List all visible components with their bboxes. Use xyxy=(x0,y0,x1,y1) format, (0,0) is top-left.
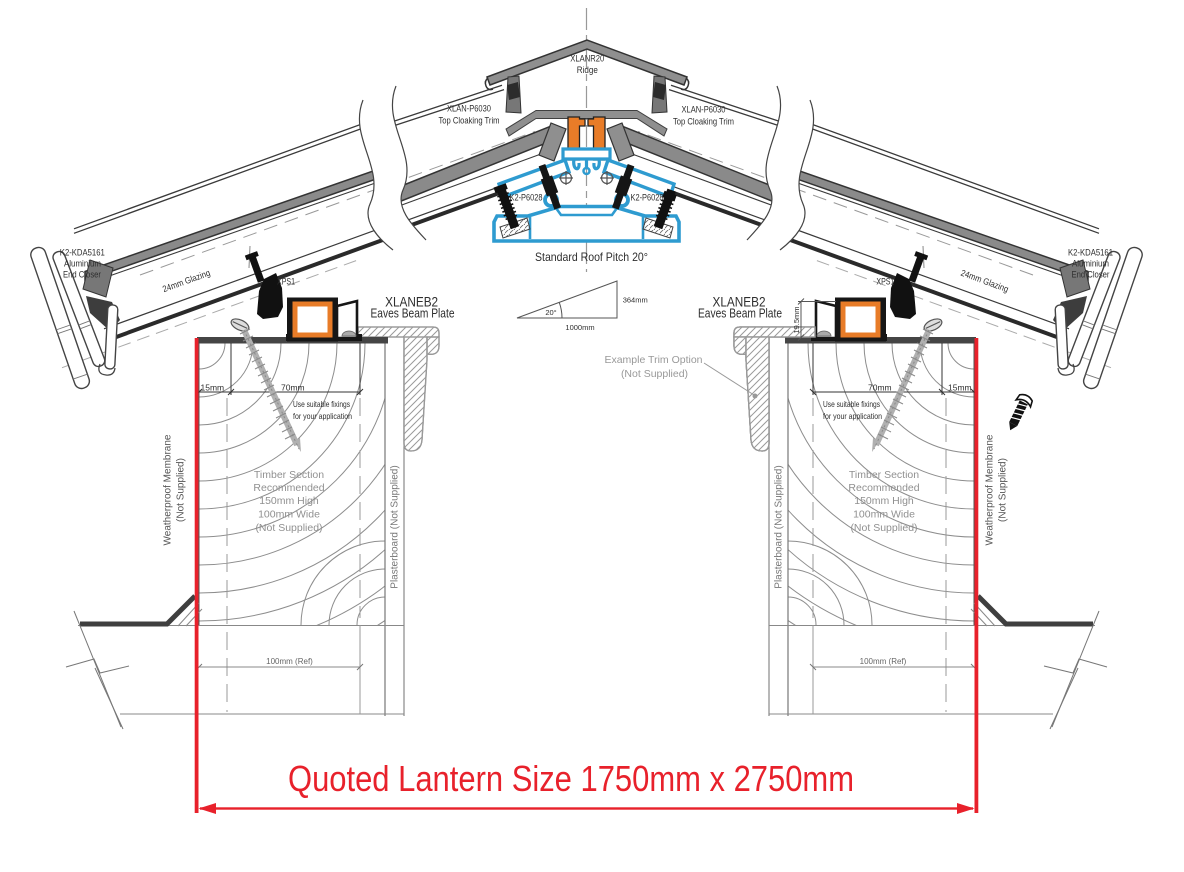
svg-text:150mm High: 150mm High xyxy=(259,495,319,507)
svg-text:(Not Supplied): (Not Supplied) xyxy=(998,458,1009,522)
svg-text:Ridge: Ridge xyxy=(577,65,598,75)
svg-text:Use suitable fixings: Use suitable fixings xyxy=(823,399,880,409)
svg-text:15mm: 15mm xyxy=(948,383,972,393)
svg-text:20°: 20° xyxy=(545,308,556,317)
svg-text:Use suitable fixings: Use suitable fixings xyxy=(293,399,350,409)
svg-text:Aluminium: Aluminium xyxy=(64,259,101,269)
svg-text:100mm Wide: 100mm Wide xyxy=(258,509,320,521)
svg-text:K2-P6028: K2-P6028 xyxy=(631,193,664,203)
svg-text:K2-KDA5161: K2-KDA5161 xyxy=(1068,247,1113,257)
svg-text:Standard Roof Pitch 20°: Standard Roof Pitch 20° xyxy=(535,250,648,264)
svg-text:150mm High: 150mm High xyxy=(854,495,914,507)
svg-text:XPS1: XPS1 xyxy=(277,277,295,287)
svg-text:Plasterboard (Not Supplied): Plasterboard (Not Supplied) xyxy=(774,465,785,588)
svg-text:100mm (Ref): 100mm (Ref) xyxy=(860,657,907,666)
svg-text:K2-P6028: K2-P6028 xyxy=(510,193,543,203)
svg-text:K2-KDA5161: K2-KDA5161 xyxy=(60,247,105,257)
svg-text:XPS1: XPS1 xyxy=(876,277,894,287)
svg-text:Eaves Beam Plate: Eaves Beam Plate xyxy=(371,306,455,321)
svg-text:19.5mm: 19.5mm xyxy=(792,306,801,333)
svg-text:100mm (Ref): 100mm (Ref) xyxy=(266,657,313,666)
svg-text:Top Cloaking Trim: Top Cloaking Trim xyxy=(439,116,500,126)
svg-text:XLAN-P6030: XLAN-P6030 xyxy=(682,105,726,115)
svg-text:XLAN-P6030: XLAN-P6030 xyxy=(447,104,491,114)
svg-text:70mm: 70mm xyxy=(868,383,892,393)
svg-text:Timber Section: Timber Section xyxy=(849,469,919,481)
svg-text:(Not Supplied): (Not Supplied) xyxy=(621,368,688,380)
svg-text:100mm Wide: 100mm Wide xyxy=(853,509,915,521)
svg-text:for your application: for your application xyxy=(293,411,352,421)
svg-text:Timber Section: Timber Section xyxy=(254,469,324,481)
svg-text:for your application: for your application xyxy=(823,411,882,421)
svg-text:Weatherproof Membrane: Weatherproof Membrane xyxy=(163,434,174,545)
svg-text:Aluminium: Aluminium xyxy=(1072,259,1109,269)
svg-text:1000mm: 1000mm xyxy=(565,323,594,332)
svg-text:Eaves Beam Plate: Eaves Beam Plate xyxy=(698,306,782,321)
svg-text:XLANR20: XLANR20 xyxy=(570,54,604,64)
svg-text:Recommended: Recommended xyxy=(253,482,324,494)
svg-text:End Closer: End Closer xyxy=(63,270,101,280)
svg-text:15mm: 15mm xyxy=(201,383,225,393)
svg-text:Recommended: Recommended xyxy=(848,482,919,494)
svg-text:Weatherproof Membrane: Weatherproof Membrane xyxy=(985,434,996,545)
svg-text:Plasterboard (Not Supplied): Plasterboard (Not Supplied) xyxy=(389,465,400,588)
svg-text:364mm: 364mm xyxy=(623,296,648,305)
svg-text:Quoted Lantern Size 1750mm x 2: Quoted Lantern Size 1750mm x 2750mm xyxy=(288,758,854,799)
svg-text:Example Trim Option: Example Trim Option xyxy=(604,354,702,366)
svg-text:End Closer: End Closer xyxy=(1072,270,1110,280)
svg-text:(Not Supplied): (Not Supplied) xyxy=(850,522,917,534)
svg-text:70mm: 70mm xyxy=(281,383,305,393)
svg-text:(Not Supplied): (Not Supplied) xyxy=(255,522,322,534)
svg-text:(Not Supplied): (Not Supplied) xyxy=(176,458,187,522)
svg-text:Top Cloaking Trim: Top Cloaking Trim xyxy=(673,117,734,127)
